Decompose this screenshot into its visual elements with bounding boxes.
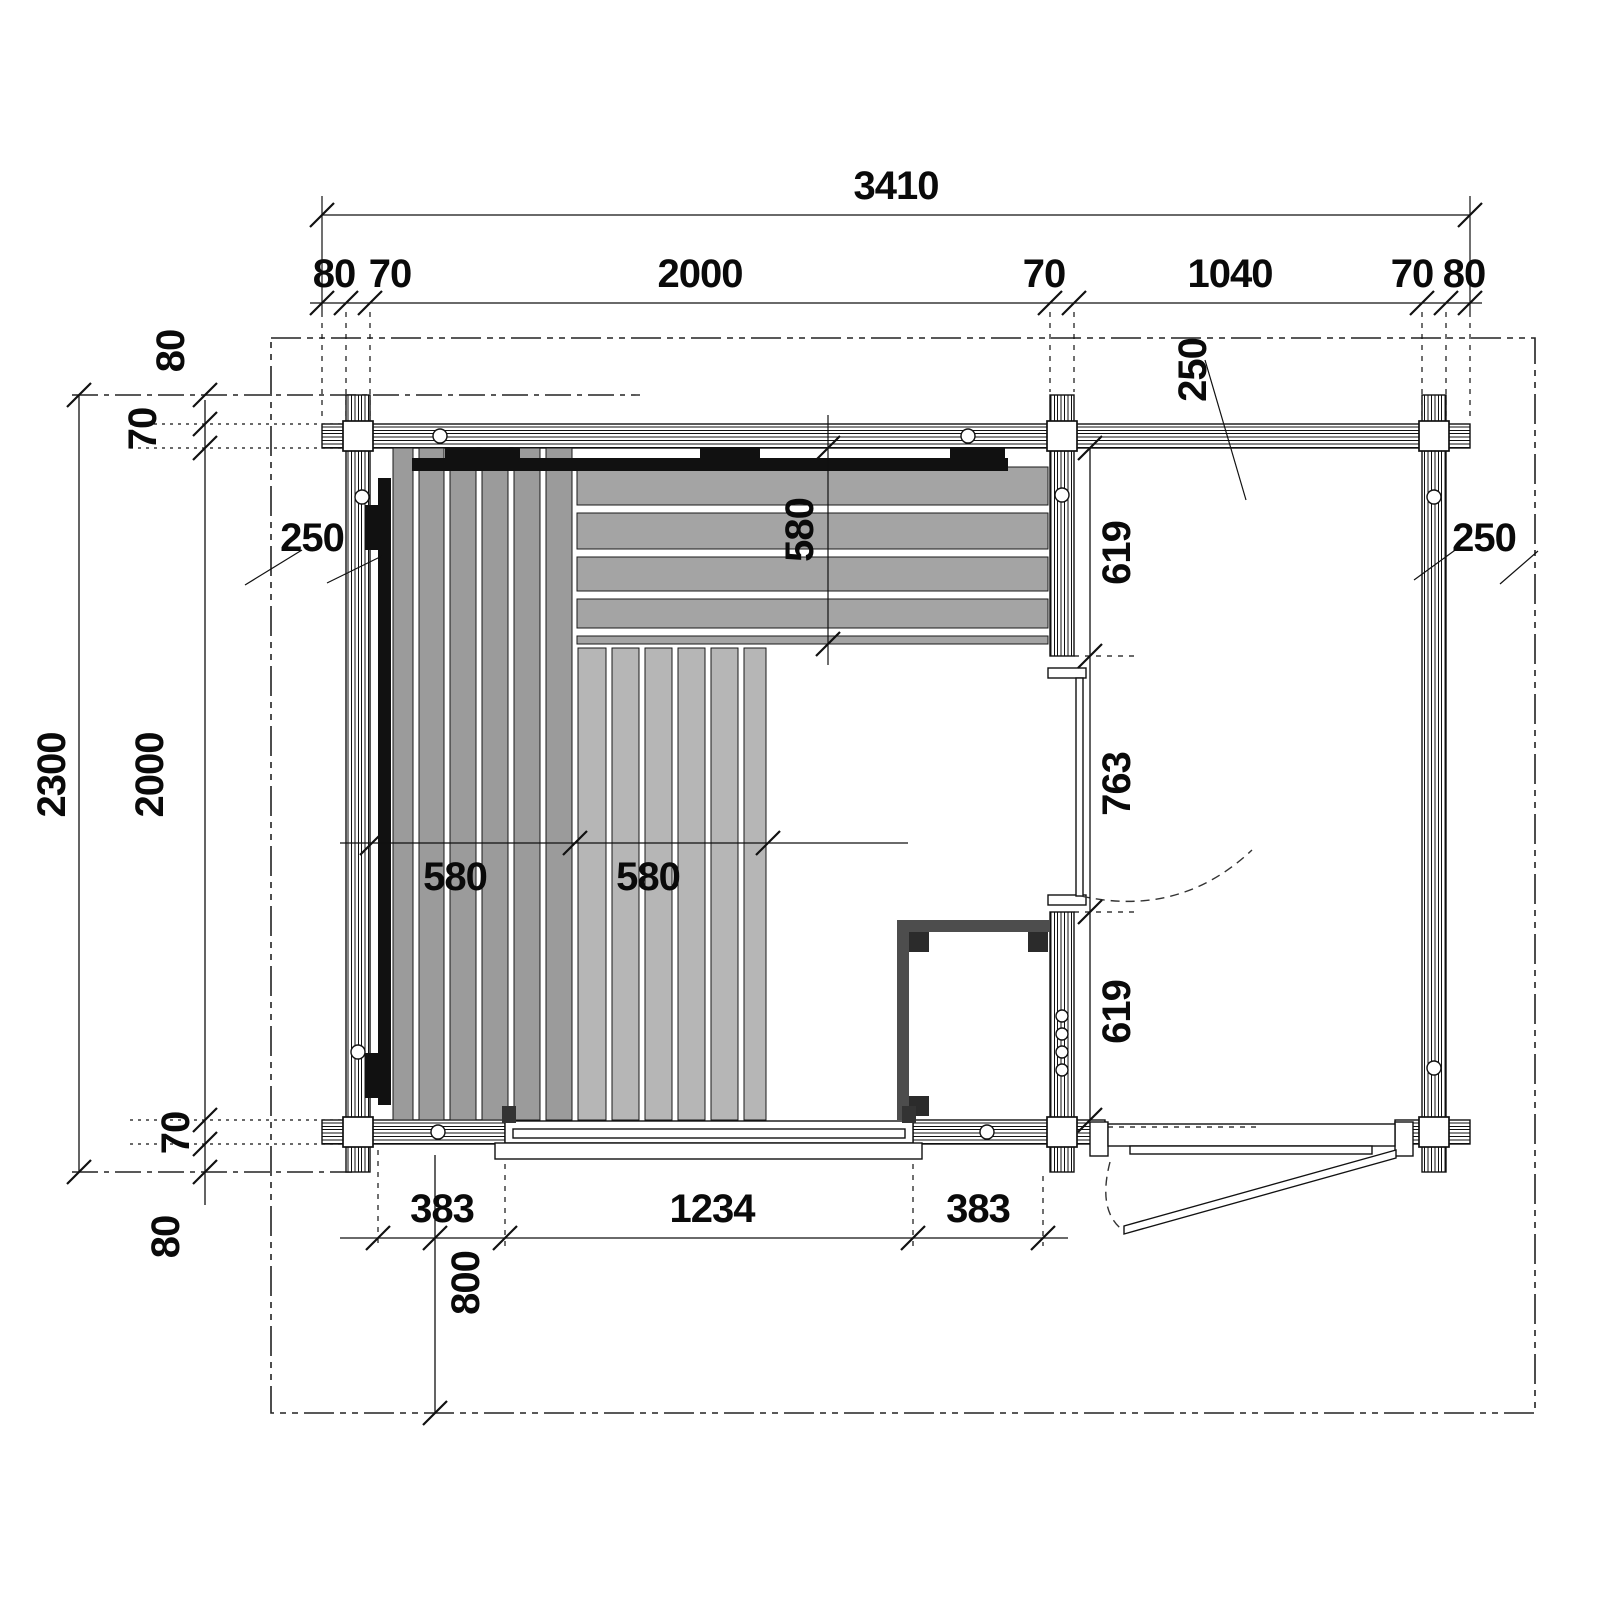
entrance-door-swing-arc <box>1106 1162 1124 1231</box>
dim-bottom-chain-0: 383 <box>410 1187 474 1231</box>
heater <box>897 920 1050 1120</box>
sauna-door-swing-arc <box>1081 850 1252 901</box>
dim-overhang-top: 250 <box>1171 338 1215 402</box>
dim-top-left-log-end: 80 <box>149 330 193 373</box>
dim-bottom-chain-1: 1234 <box>670 1187 757 1231</box>
log-joint <box>1047 421 1077 451</box>
log-joint <box>1419 421 1449 451</box>
entrance-door <box>1090 1122 1413 1234</box>
dim-partition-chain-1: 763 <box>1095 752 1139 816</box>
dim-partition-chain-2: 619 <box>1095 980 1139 1044</box>
dim-partition-chain-0: 619 <box>1095 521 1139 585</box>
sauna-door-leaf <box>1076 678 1083 896</box>
dim-top-chain-6: 80 <box>1443 252 1486 296</box>
log-joint <box>343 421 373 451</box>
dim-top-left-wall: 70 <box>121 408 165 451</box>
dim-top-chain-0: 80 <box>313 252 356 296</box>
dim-porch-depth: 800 <box>444 1251 488 1315</box>
dim-overhang-left: 250 <box>280 516 344 560</box>
log-joint <box>1047 1117 1077 1147</box>
sauna-floor-plan: 3410 80 70 2000 70 1040 70 80 2300 2000 … <box>0 0 1600 1600</box>
dim-bottom-chain-2: 383 <box>946 1187 1010 1231</box>
dim-top-chain-3: 70 <box>1023 252 1066 296</box>
dim-lower-bench: 580 <box>616 855 680 899</box>
dim-overall-depth: 2300 <box>30 733 74 818</box>
dim-bottom-left-log-end: 80 <box>144 1216 188 1259</box>
dim-top-chain-2: 2000 <box>658 252 743 296</box>
dim-interior-depth: 2000 <box>128 733 172 818</box>
entrance-door-leaf <box>1124 1150 1396 1234</box>
wall-north <box>322 424 1470 448</box>
dim-top-chain-5: 70 <box>1391 252 1434 296</box>
dim-top-chain-4: 1040 <box>1188 252 1273 296</box>
dim-overhang-right: 250 <box>1452 516 1516 560</box>
dim-bottom-left-wall: 70 <box>154 1112 198 1155</box>
extension-lines <box>72 196 1470 1246</box>
sauna-door <box>1048 668 1252 905</box>
window-glazing <box>513 1129 905 1138</box>
window-sill <box>495 1143 922 1159</box>
dim-upper-bench: 580 <box>778 498 822 562</box>
log-joint <box>1419 1117 1449 1147</box>
wall-east <box>1422 395 1446 1172</box>
dim-top-chain-1: 70 <box>369 252 412 296</box>
left-bench <box>393 448 572 1120</box>
dim-left-bench: 580 <box>423 855 487 899</box>
dim-overall-width: 3410 <box>854 164 939 208</box>
log-joint <box>343 1117 373 1147</box>
dimension-lines <box>67 203 1538 1425</box>
